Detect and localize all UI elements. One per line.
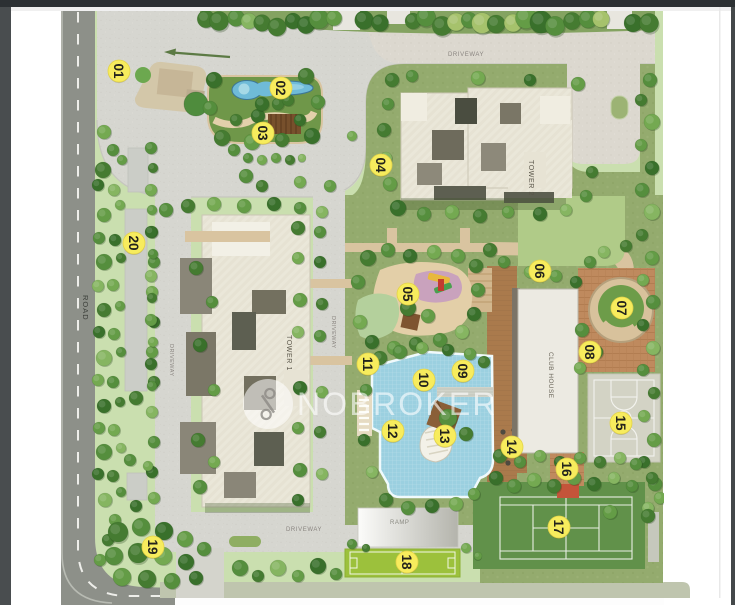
svg-text:09: 09 [455,363,470,379]
svg-text:13: 13 [437,428,452,444]
svg-text:DRIVEWAY: DRIVEWAY [448,52,484,58]
svg-text:TOWER 2: TOWER 2 [527,160,534,196]
svg-text:07: 07 [614,300,629,315]
svg-text:DRIVEWAY: DRIVEWAY [168,344,174,377]
svg-text:CLUB HOUSE: CLUB HOUSE [547,352,554,399]
svg-text:15: 15 [613,415,628,431]
svg-text:14: 14 [504,439,519,455]
svg-text:19: 19 [145,539,160,555]
svg-text:06: 06 [532,263,547,279]
svg-text:DRIVEWAY: DRIVEWAY [330,316,336,349]
svg-text:08: 08 [582,344,597,360]
svg-text:16: 16 [559,461,574,477]
svg-text:RAMP: RAMP [390,520,409,526]
svg-text:05: 05 [400,286,415,302]
svg-text:11: 11 [360,357,375,372]
svg-text:NOBROKER: NOBROKER [297,386,498,422]
svg-text:ROAD: ROAD [81,295,90,321]
svg-text:01: 01 [111,63,126,79]
svg-text:02: 02 [273,80,288,96]
svg-text:04: 04 [373,157,388,173]
svg-text:18: 18 [399,554,414,570]
svg-text:DRIVEWAY: DRIVEWAY [286,527,322,533]
svg-text:20: 20 [126,235,141,250]
svg-text:17: 17 [551,519,566,534]
svg-text:TOWER 1: TOWER 1 [285,335,292,371]
svg-text:03: 03 [255,125,270,141]
svg-text:12: 12 [385,423,400,439]
